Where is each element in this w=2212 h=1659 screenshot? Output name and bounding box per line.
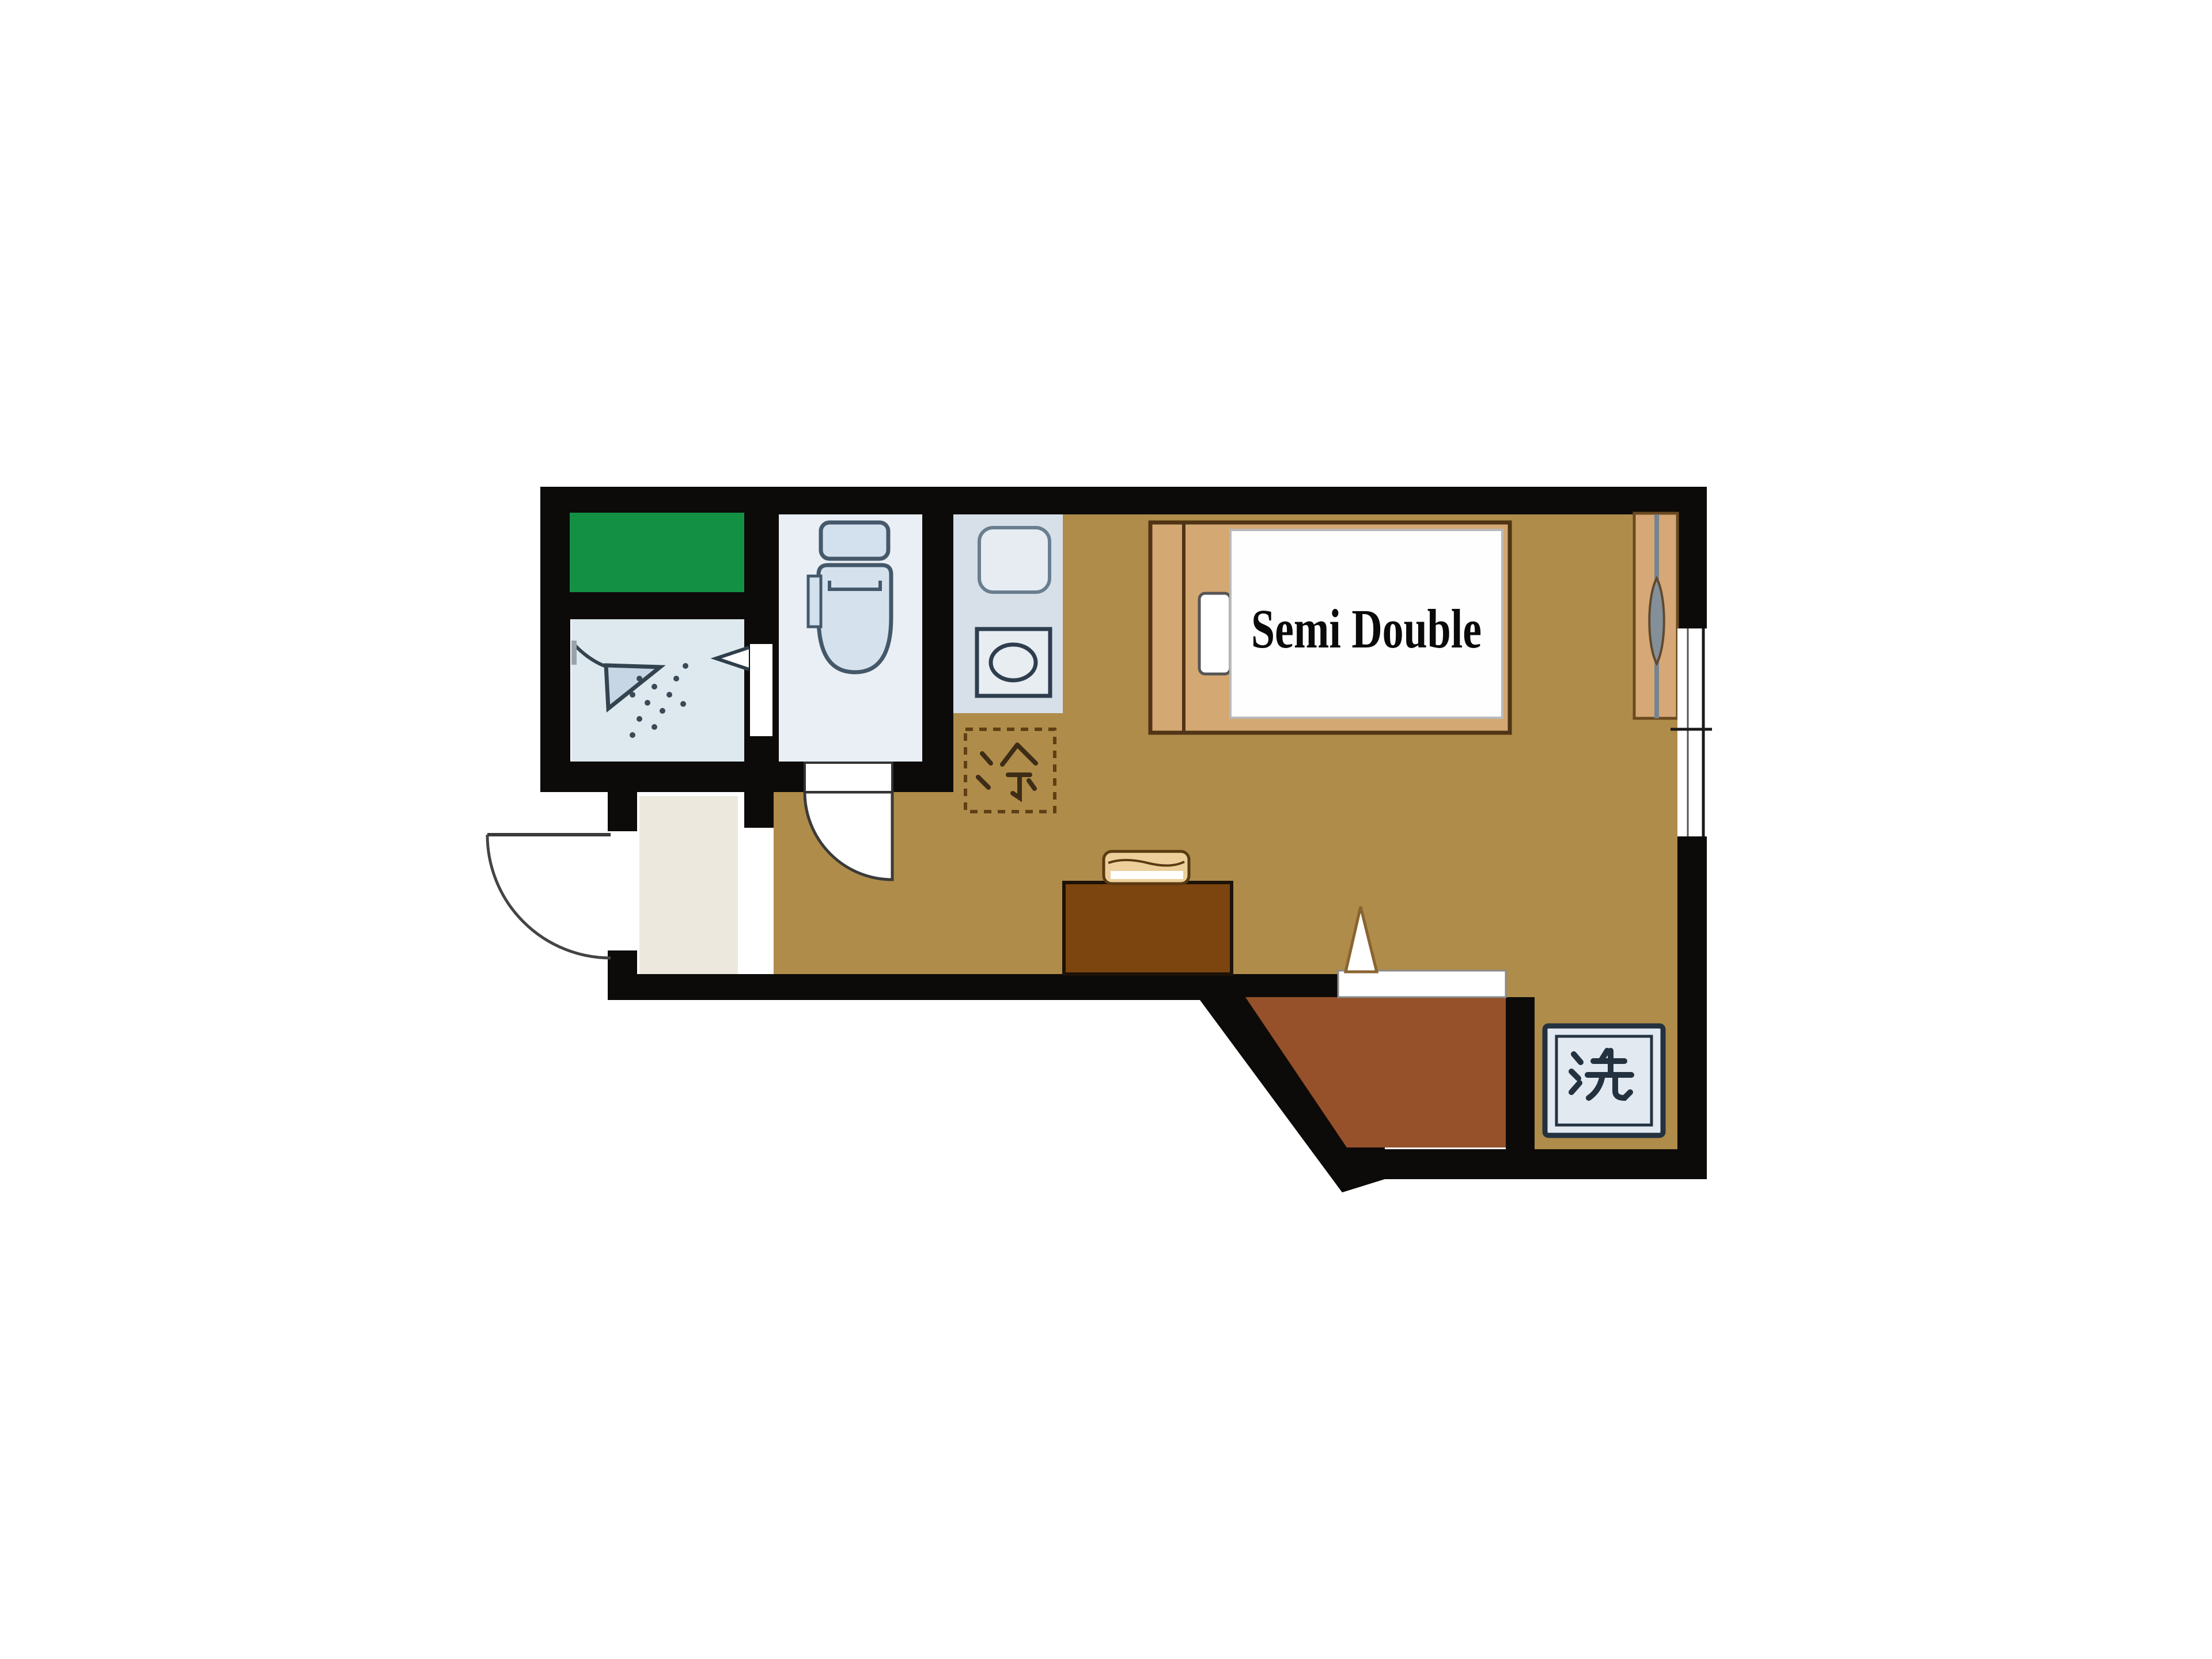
- svg-text:Semi Double: Semi Double: [1251, 598, 1482, 660]
